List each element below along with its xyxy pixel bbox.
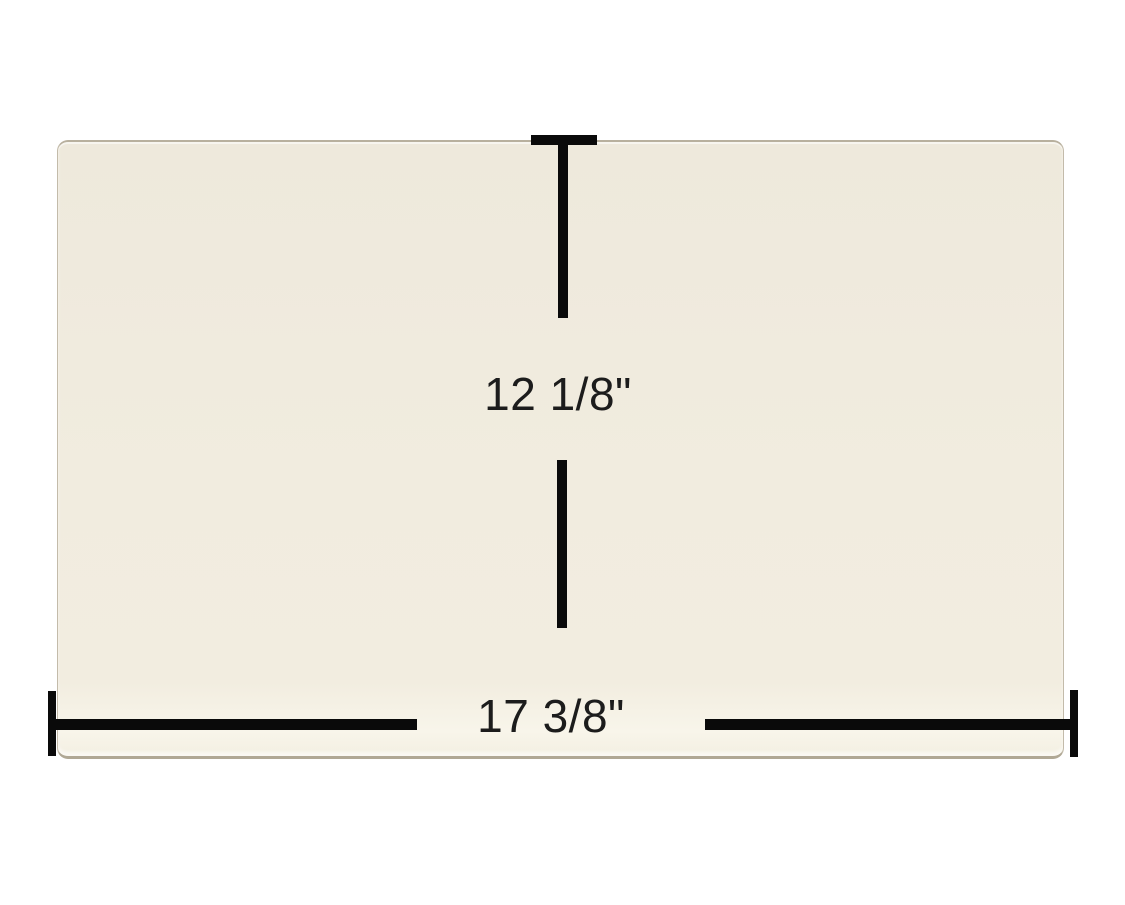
product-dimension-diagram: 12 1/8" 17 3/8" (0, 0, 1125, 905)
width-dimension-right-cap (1070, 690, 1078, 757)
width-dimension-label: 17 3/8" (477, 692, 625, 740)
width-dimension-line-right (705, 719, 1070, 730)
height-dimension-line-upper (558, 145, 568, 318)
height-dimension-line-lower (557, 460, 567, 628)
width-dimension-left-cap (48, 691, 56, 756)
height-dimension-top-cap (531, 135, 597, 145)
width-dimension-line-left (56, 719, 417, 730)
height-dimension-label: 12 1/8" (484, 370, 632, 418)
